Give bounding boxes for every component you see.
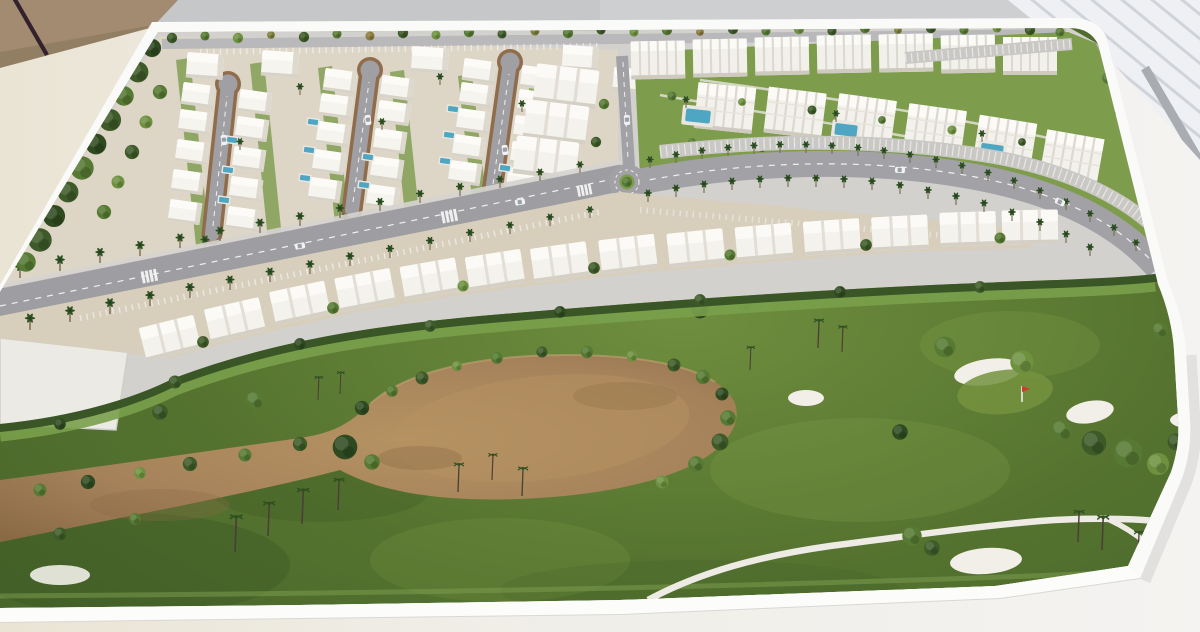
model-scene-svg <box>0 0 1200 632</box>
architectural-model-photo <box>0 0 1200 632</box>
